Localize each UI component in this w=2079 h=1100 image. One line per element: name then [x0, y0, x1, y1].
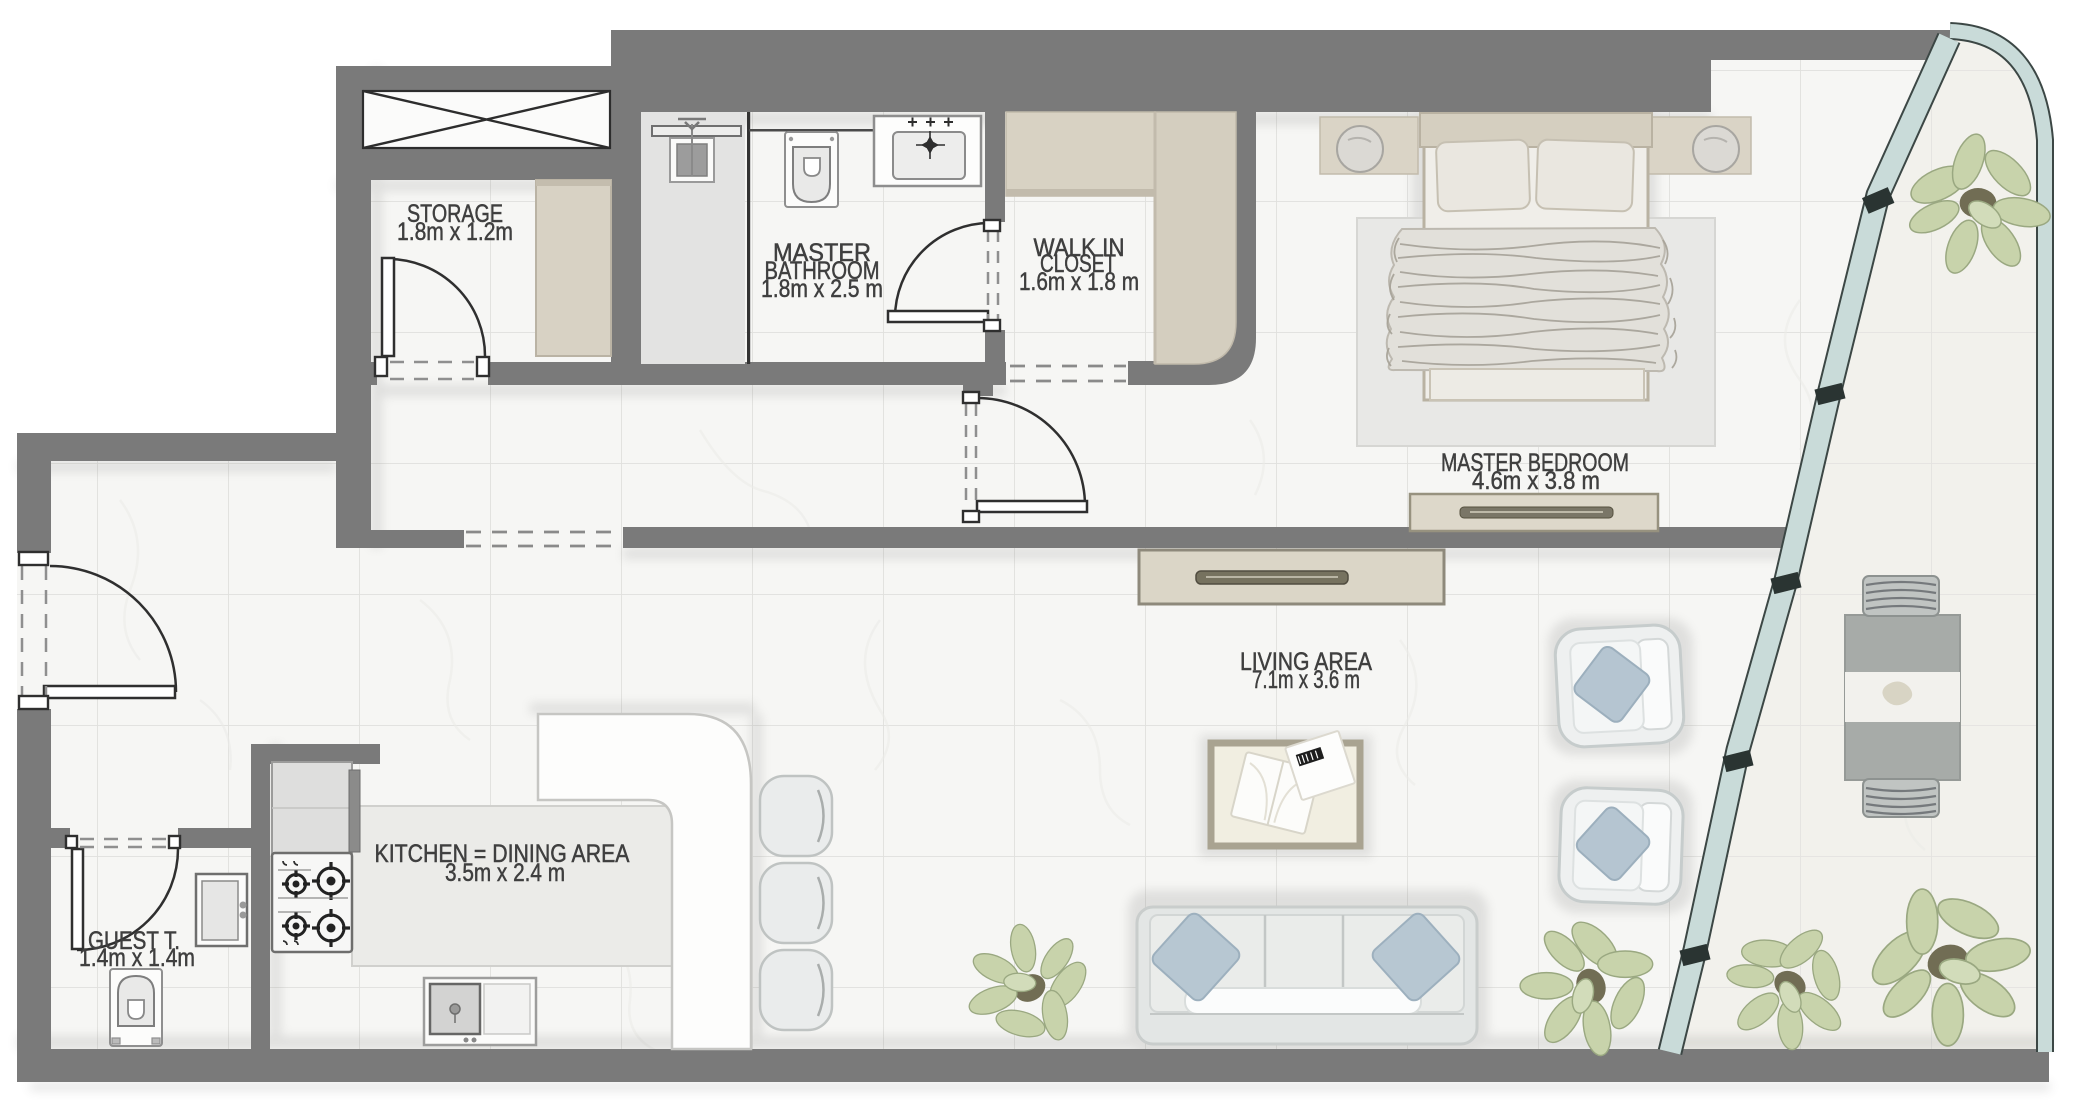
- svg-text:3.5m x 2.4 m: 3.5m x 2.4 m: [445, 859, 565, 887]
- svg-text:1.8m x 2.5 m: 1.8m x 2.5 m: [761, 275, 883, 303]
- svg-text:1.6m x 1.8 m: 1.6m x 1.8 m: [1019, 268, 1139, 296]
- svg-text:1.4m x 1.4m: 1.4m x 1.4m: [79, 944, 195, 972]
- svg-text:4.6m x 3.8 m: 4.6m x 3.8 m: [1472, 467, 1600, 495]
- svg-text:7.1m x 3.6 m: 7.1m x 3.6 m: [1252, 666, 1360, 694]
- svg-text:1.8m x 1.2m: 1.8m x 1.2m: [397, 218, 513, 246]
